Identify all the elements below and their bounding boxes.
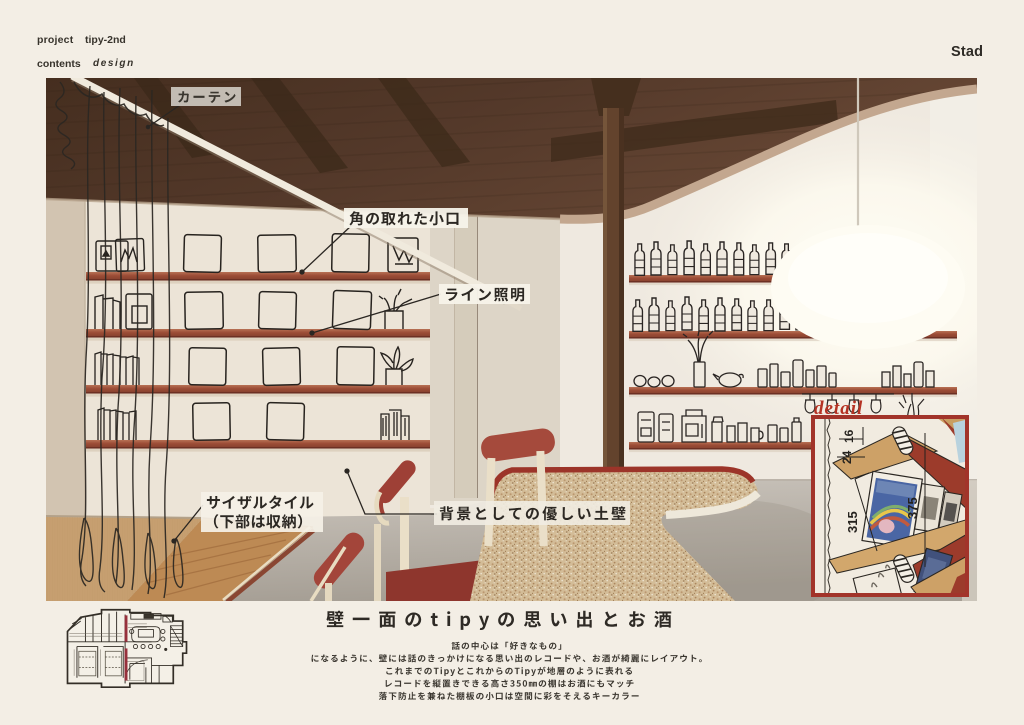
svg-text:detail: detail: [814, 398, 863, 419]
